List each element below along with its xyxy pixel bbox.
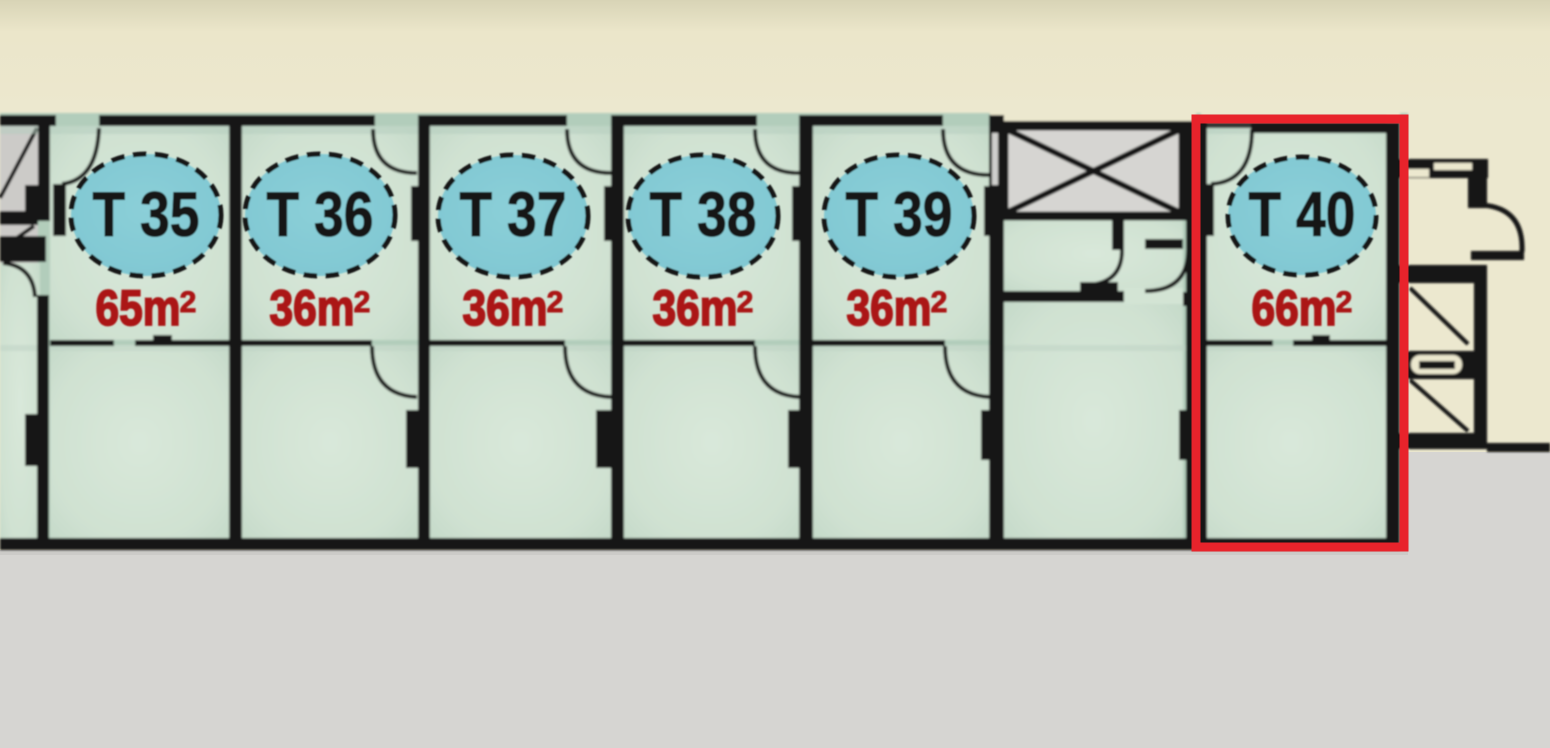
svg-text:65m: 65m — [96, 280, 181, 336]
svg-text:2: 2 — [180, 286, 197, 319]
svg-text:2: 2 — [354, 286, 371, 319]
svg-text:T 40: T 40 — [1249, 180, 1356, 250]
svg-text:66m: 66m — [1252, 280, 1337, 336]
svg-text:T 36: T 36 — [267, 180, 374, 250]
svg-text:T 38: T 38 — [650, 180, 757, 250]
svg-text:2: 2 — [931, 286, 948, 319]
svg-text:2: 2 — [737, 286, 754, 319]
svg-text:36m: 36m — [653, 280, 738, 336]
svg-text:2: 2 — [547, 286, 564, 319]
svg-text:36m: 36m — [847, 280, 932, 336]
svg-text:36m: 36m — [463, 280, 548, 336]
svg-text:T 39: T 39 — [846, 180, 953, 250]
svg-text:36m: 36m — [270, 280, 355, 336]
svg-text:T 35: T 35 — [93, 180, 200, 250]
svg-text:T 37: T 37 — [460, 180, 567, 250]
svg-text:2: 2 — [1336, 286, 1353, 319]
